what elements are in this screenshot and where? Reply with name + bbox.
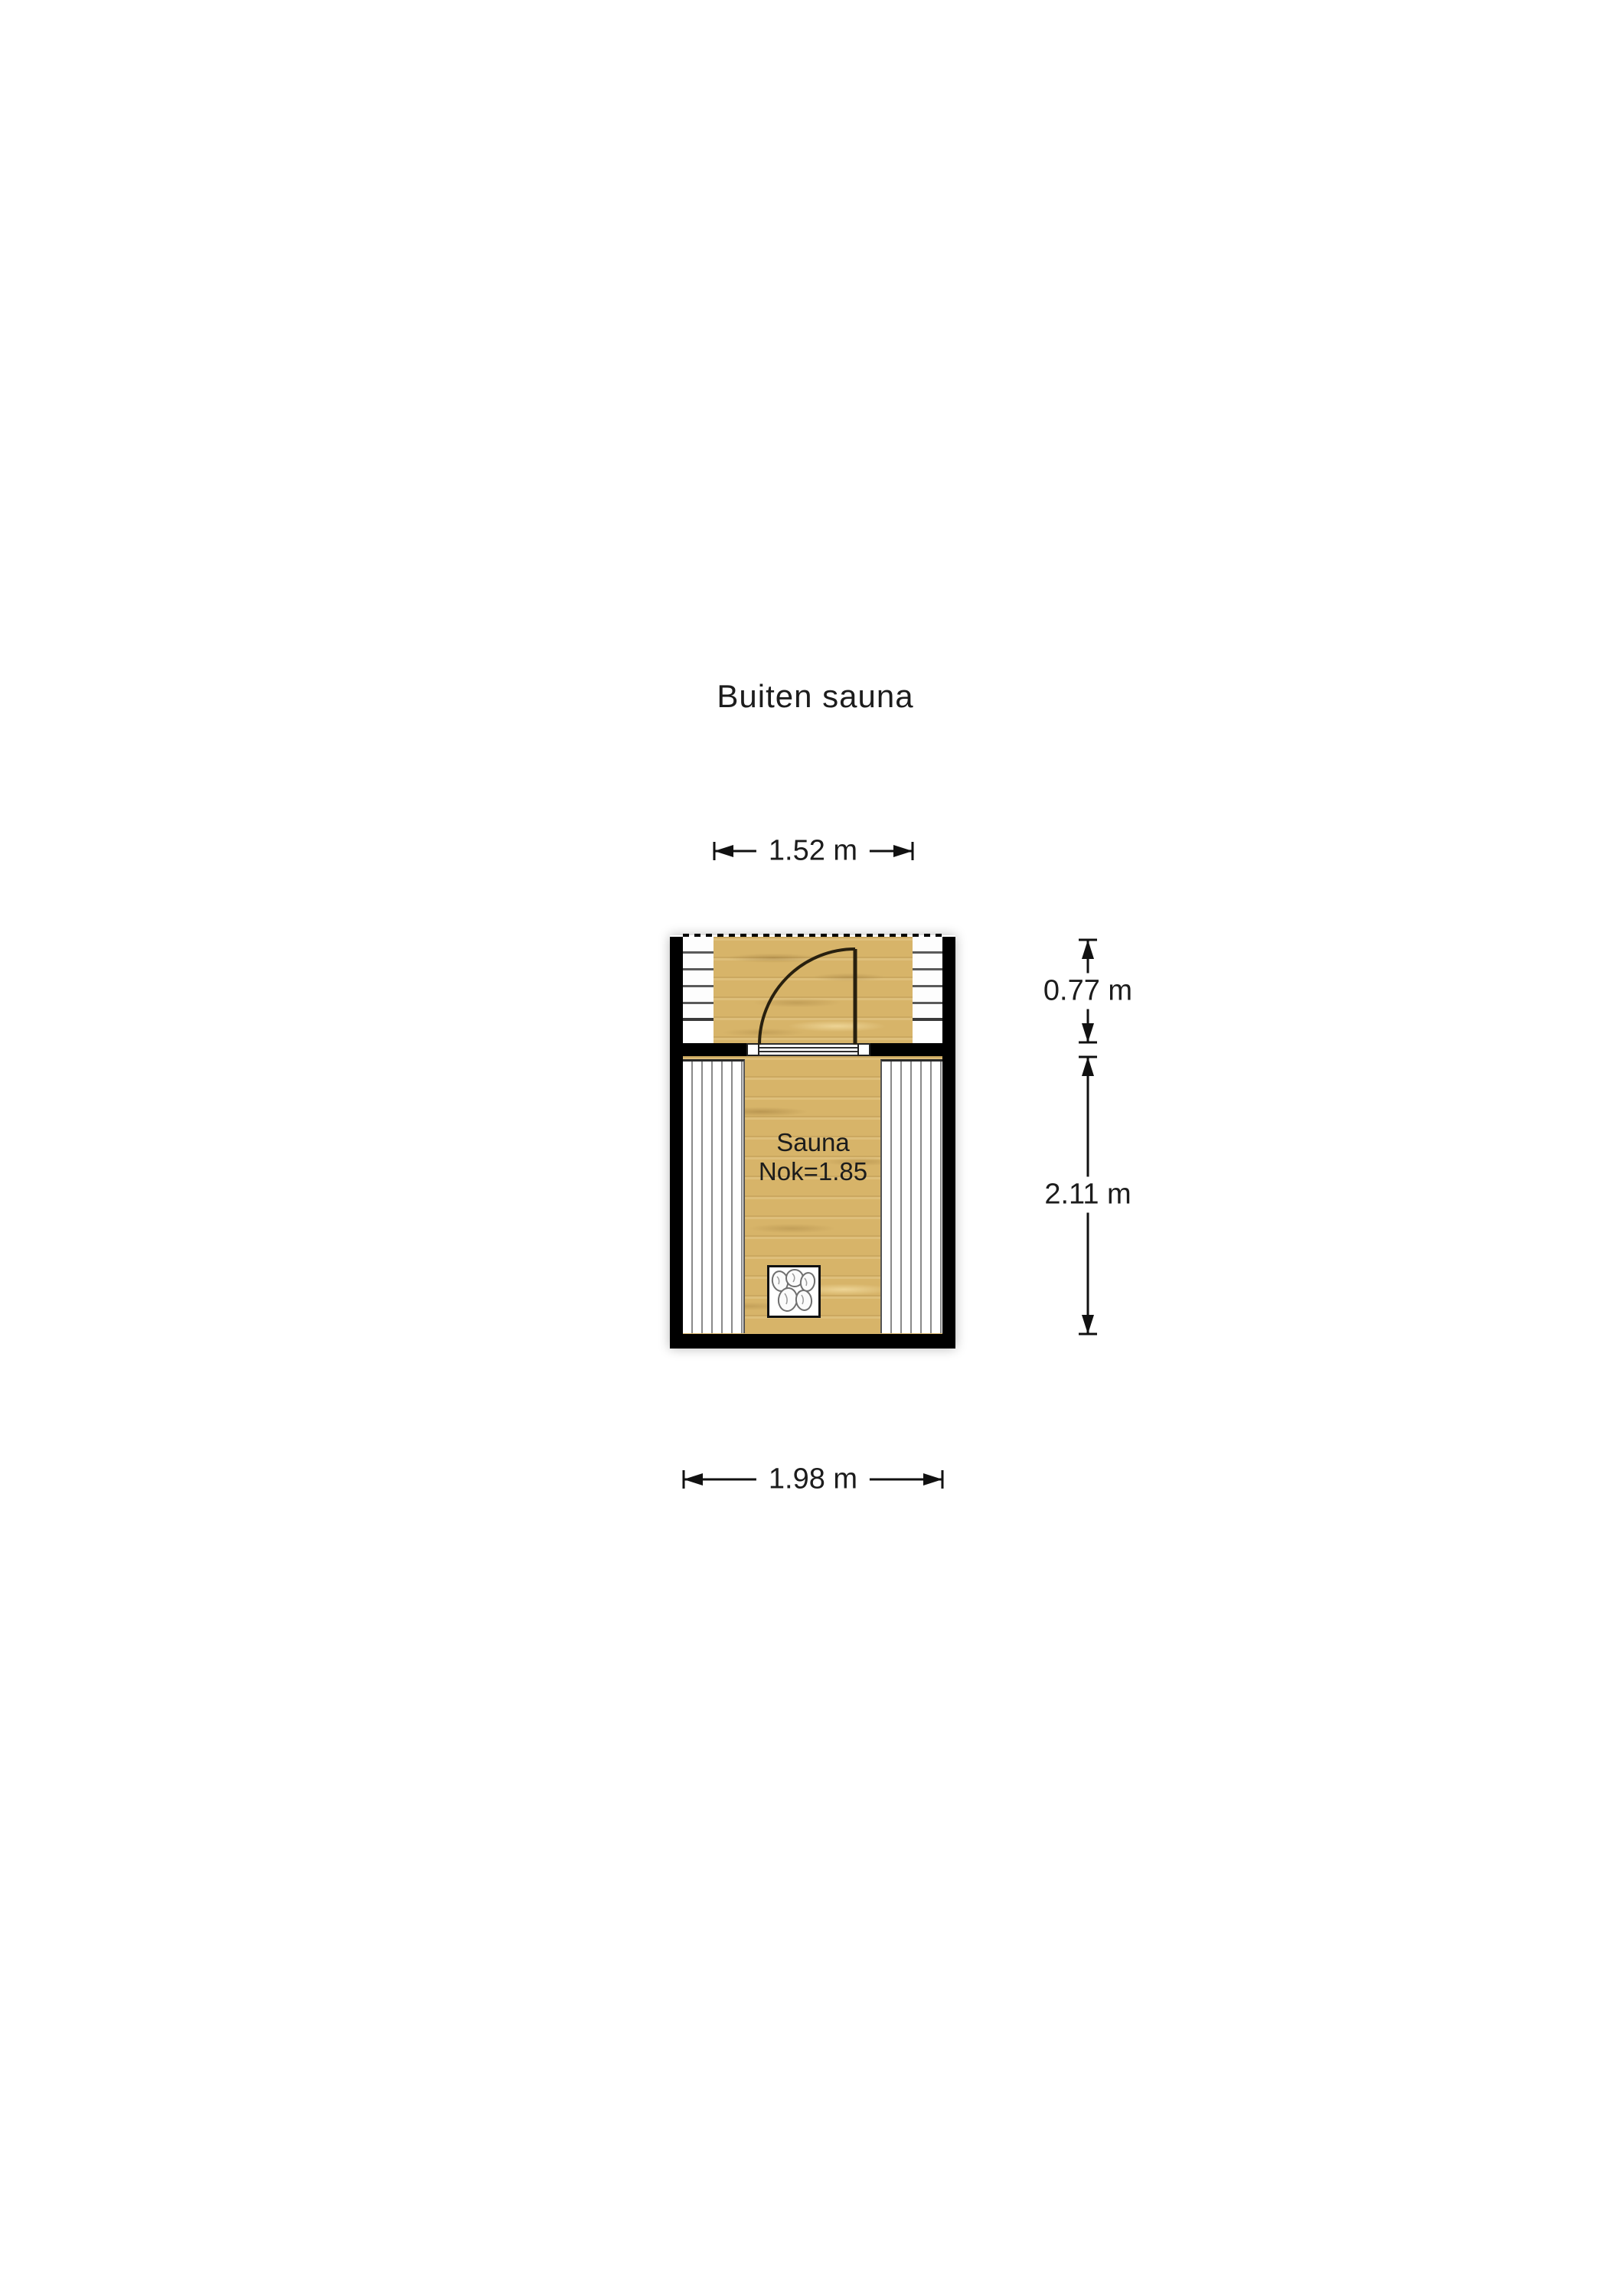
page-title: Buiten sauna	[717, 678, 913, 715]
dimension-label-deck-width: 1.52 m	[756, 833, 870, 869]
dimension-label-outer-width: 1.98 m	[756, 1462, 870, 1498]
room-label: Sauna Nok=1.85	[759, 1128, 867, 1186]
room-ridge-height: Nok=1.85	[759, 1157, 867, 1186]
dimension-label-room-depth: 2.11 m	[1032, 1177, 1143, 1213]
sauna-heater	[767, 1265, 821, 1318]
dimension-label-porch-depth: 0.77 m	[1031, 974, 1145, 1009]
heater-stones-icon	[769, 1267, 818, 1316]
room-name: Sauna	[759, 1128, 867, 1157]
page: { "title": "Buiten sauna", "plan": { "ro…	[0, 0, 1623, 2296]
